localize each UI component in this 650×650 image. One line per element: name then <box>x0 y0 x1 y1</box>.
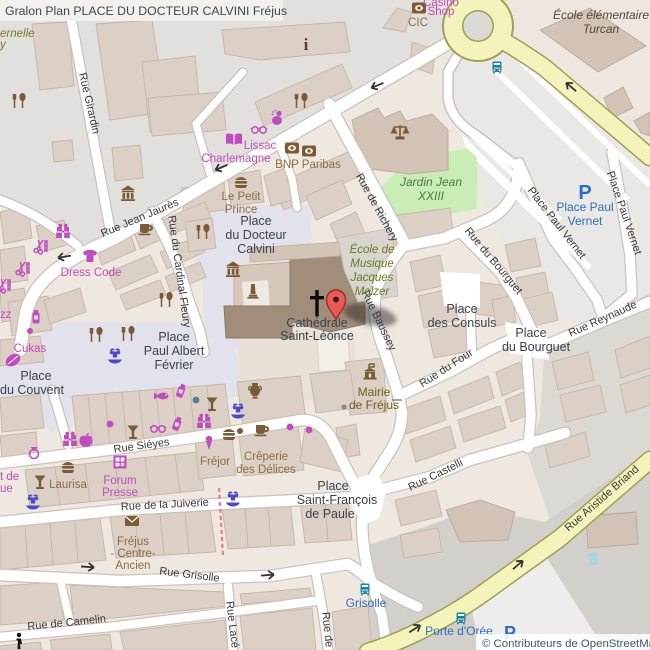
svg-text:Saint-Léonce: Saint-Léonce <box>280 329 354 343</box>
svg-text:Shop: Shop <box>428 6 455 18</box>
svg-text:Saint-François: Saint-François <box>297 493 378 507</box>
svg-text:CIC: CIC <box>408 17 428 29</box>
svg-text:Crêperie: Crêperie <box>244 451 288 463</box>
svg-text:Place: Place <box>515 326 546 340</box>
svg-text:Le Petit: Le Petit <box>222 191 262 203</box>
svg-text:Paul Albert: Paul Albert <box>144 344 205 358</box>
svg-text:Jardin Jean: Jardin Jean <box>399 175 462 189</box>
svg-text:des Consuls: des Consuls <box>428 316 497 330</box>
svg-text:Ancien: Ancien <box>115 560 150 572</box>
svg-text:Fréjor: Fréjor <box>200 456 230 468</box>
svg-text:i: i <box>304 35 309 54</box>
svg-text:Jacques: Jacques <box>350 272 394 284</box>
svg-text:Cathédrale: Cathédrale <box>286 316 347 330</box>
svg-text:XXIII: XXIII <box>417 189 445 203</box>
svg-text:ue: ue <box>0 483 13 495</box>
svg-text:Grisolle: Grisolle <box>346 596 387 610</box>
svg-text:t de: t de <box>0 471 19 483</box>
svg-text:Place: Place <box>446 302 477 316</box>
svg-text:Turcan: Turcan <box>583 22 620 36</box>
svg-text:Place: Place <box>158 330 189 344</box>
svg-text:Laurisa: Laurisa <box>49 479 87 491</box>
svg-text:Mairie: Mairie <box>358 385 391 399</box>
svg-text:du Docteur: du Docteur <box>225 228 286 242</box>
svg-text:Place: Place <box>317 479 348 493</box>
svg-text:Place: Place <box>240 214 271 228</box>
svg-text:- Centre-: - Centre- <box>110 548 156 560</box>
svg-text:de Paule: de Paule <box>305 507 354 521</box>
svg-text:Calvini: Calvini <box>237 242 275 256</box>
svg-text:École de: École de <box>350 243 395 256</box>
svg-text:Cukas: Cukas <box>14 343 47 355</box>
svg-text:Lissac: Lissac <box>244 140 277 152</box>
svg-text:Vernet: Vernet <box>568 214 603 228</box>
svg-text:du Bourguet: du Bourguet <box>502 340 571 354</box>
svg-text:de Fréjus: de Fréjus <box>349 398 399 412</box>
svg-text:zz: zz <box>0 309 12 321</box>
svg-text:Fréjus: Fréjus <box>117 536 149 548</box>
svg-text:Musique: Musique <box>350 258 393 270</box>
svg-text:des Délices: des Délices <box>236 464 296 476</box>
svg-text:École élémentaire: École élémentaire <box>553 7 649 22</box>
svg-text:du Couvent: du Couvent <box>0 383 64 397</box>
svg-text:Prince: Prince <box>225 204 258 216</box>
svg-text:Forum: Forum <box>103 475 136 487</box>
svg-text:Presse: Presse <box>102 487 138 499</box>
svg-text:Charlemagne: Charlemagne <box>201 153 270 165</box>
svg-text:BNP Paribas: BNP Paribas <box>275 159 341 171</box>
svg-text:© Contributeurs de OpenStreetM: © Contributeurs de OpenStreetMap <box>482 638 650 650</box>
svg-text:Place: Place <box>20 369 51 383</box>
svg-text:Place Paul: Place Paul <box>556 200 613 214</box>
svg-text:Février: Février <box>155 358 194 372</box>
svg-text:Melzer: Melzer <box>355 286 391 298</box>
svg-text:Gralon Plan PLACE DU DOCTEUR C: Gralon Plan PLACE DU DOCTEUR CALVINI Fré… <box>5 4 287 18</box>
svg-text:Dress Code: Dress Code <box>61 267 122 279</box>
